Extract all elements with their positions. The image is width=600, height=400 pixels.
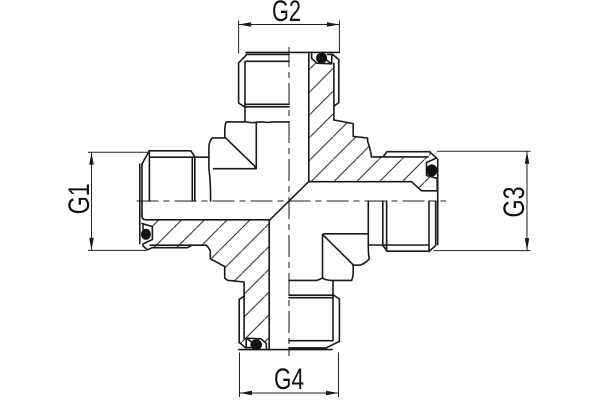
svg-text:G4: G4 bbox=[274, 363, 304, 396]
svg-text:G2: G2 bbox=[272, 0, 301, 28]
svg-text:G1: G1 bbox=[63, 183, 96, 214]
svg-text:G3: G3 bbox=[498, 187, 531, 218]
